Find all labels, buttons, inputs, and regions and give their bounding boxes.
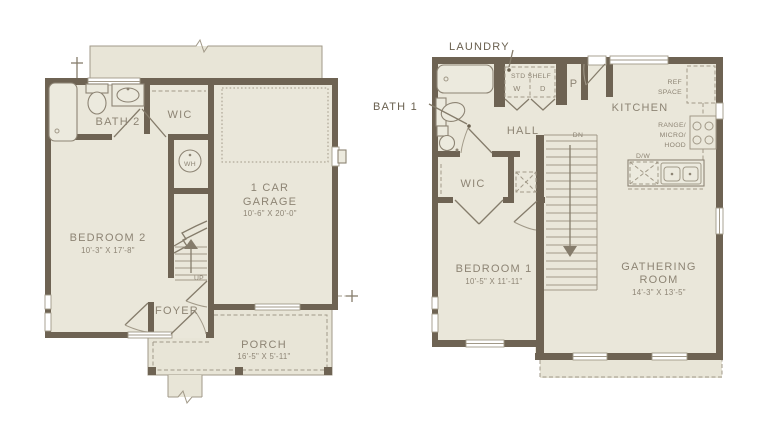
- gathering-label-line2: ROOM: [639, 274, 678, 286]
- wall-segment: [508, 157, 514, 203]
- wall-segment: [556, 57, 567, 105]
- bedroom1-dims: 10'-5" X 11'-11": [465, 277, 522, 286]
- wall-segment: [432, 197, 453, 203]
- bathtub-icon: [437, 65, 493, 93]
- range-label-line1: RANGE/: [658, 122, 686, 129]
- bedroom1-label: BEDROOM 1: [456, 263, 533, 275]
- wall-segment: [432, 57, 723, 64]
- walkway-surface: [168, 375, 202, 397]
- wall-segment: [492, 151, 520, 157]
- window: [45, 295, 51, 309]
- survey-marker-left: [71, 57, 83, 78]
- porch-label: PORCH: [241, 339, 287, 351]
- garage-label-line1: 1 CAR: [251, 182, 289, 194]
- leader-dot: [467, 124, 471, 128]
- wall-segment: [144, 78, 150, 134]
- flush-icon: [456, 149, 459, 152]
- wall-segment: [432, 151, 460, 157]
- window: [45, 313, 51, 331]
- wall-segment: [503, 197, 514, 203]
- garage-dims: 10'-6" X 20'-0": [243, 209, 297, 218]
- kitchen-counter: [628, 160, 704, 186]
- kitchen-label: KITCHEN: [612, 102, 669, 114]
- porch-post: [235, 367, 243, 375]
- window: [432, 314, 438, 332]
- wic2-label: WIC: [461, 178, 486, 190]
- wic-label: WIC: [168, 109, 193, 121]
- wall-segment: [208, 78, 214, 338]
- dryer-label: D: [540, 84, 546, 93]
- porch-post: [148, 367, 156, 375]
- wall-segment: [148, 302, 154, 332]
- window: [432, 297, 438, 309]
- wh-label: WH: [184, 161, 196, 168]
- first-floor-plan: WH UP BATH 2 WIC: [45, 40, 358, 403]
- dn-label: DN: [573, 132, 583, 139]
- toilet-bowl-icon: [440, 136, 455, 151]
- ref-label-line1: REF: [668, 79, 683, 86]
- survey-marker-right: [338, 290, 358, 302]
- bedroom2-dims: 10'-3" X 17'-8": [81, 246, 135, 255]
- floor-plan-sheet: WH UP BATH 2 WIC: [0, 0, 767, 436]
- bathtub-icon: [49, 83, 77, 141]
- toilet-bowl-icon: [88, 92, 106, 114]
- hall-label: HALL: [507, 125, 539, 137]
- toilet-tank-icon: [437, 126, 448, 136]
- faucet-icon: [127, 88, 130, 91]
- wall-segment: [494, 57, 505, 107]
- dw-label: D/W: [636, 153, 650, 160]
- walkway-slab: [168, 375, 202, 403]
- range-label-line2: MICRO/: [660, 132, 686, 139]
- second-floor-area: [432, 57, 723, 360]
- laundry-label: LAUNDRY: [449, 41, 510, 53]
- water-heater-valve-icon: [189, 154, 192, 157]
- pantry-label: P: [570, 78, 579, 90]
- floor-plan-canvas: WH UP BATH 2 WIC: [0, 0, 767, 436]
- porch-dims: 16'-5" X 5'-11": [237, 352, 290, 361]
- range-label-line3: HOOD: [664, 142, 686, 149]
- wall-segment: [535, 353, 723, 360]
- wall-segment: [332, 78, 338, 310]
- window: [716, 103, 723, 119]
- entry-door-opening: [588, 56, 606, 65]
- second-floor-plan: STD SHELF W D: [373, 41, 723, 378]
- wall-segment: [168, 188, 214, 194]
- garage-label-line2: GARAGE: [243, 196, 297, 208]
- patio-surface: [540, 360, 722, 378]
- bath1-label: BATH 1: [373, 101, 418, 113]
- washer-label: W: [513, 84, 521, 93]
- driveway-slab: [90, 40, 322, 78]
- bath2-label: BATH 2: [96, 116, 141, 128]
- wall-segment: [168, 134, 213, 140]
- drain-icon: [689, 173, 692, 176]
- foyer-label: FOYER: [155, 305, 199, 317]
- gathering-dims: 14'-3" X 13'-5": [632, 288, 686, 297]
- drain-icon: [671, 173, 674, 176]
- bedroom2-label: BEDROOM 2: [70, 232, 147, 244]
- wall-segment: [168, 140, 174, 278]
- shelf-label: STD SHELF: [511, 73, 551, 80]
- gathering-label-line1: GATHERING: [621, 261, 696, 273]
- driveway-surface: [90, 46, 322, 78]
- leader-dot: [507, 68, 511, 72]
- water-heater: WH: [179, 150, 201, 172]
- ref-label-line2: SPACE: [658, 89, 682, 96]
- garage-door-panel: [338, 150, 346, 163]
- porch-post: [324, 367, 332, 375]
- wall-segment: [536, 135, 544, 353]
- up-label: UP: [194, 275, 204, 282]
- patio-slab: [540, 360, 722, 378]
